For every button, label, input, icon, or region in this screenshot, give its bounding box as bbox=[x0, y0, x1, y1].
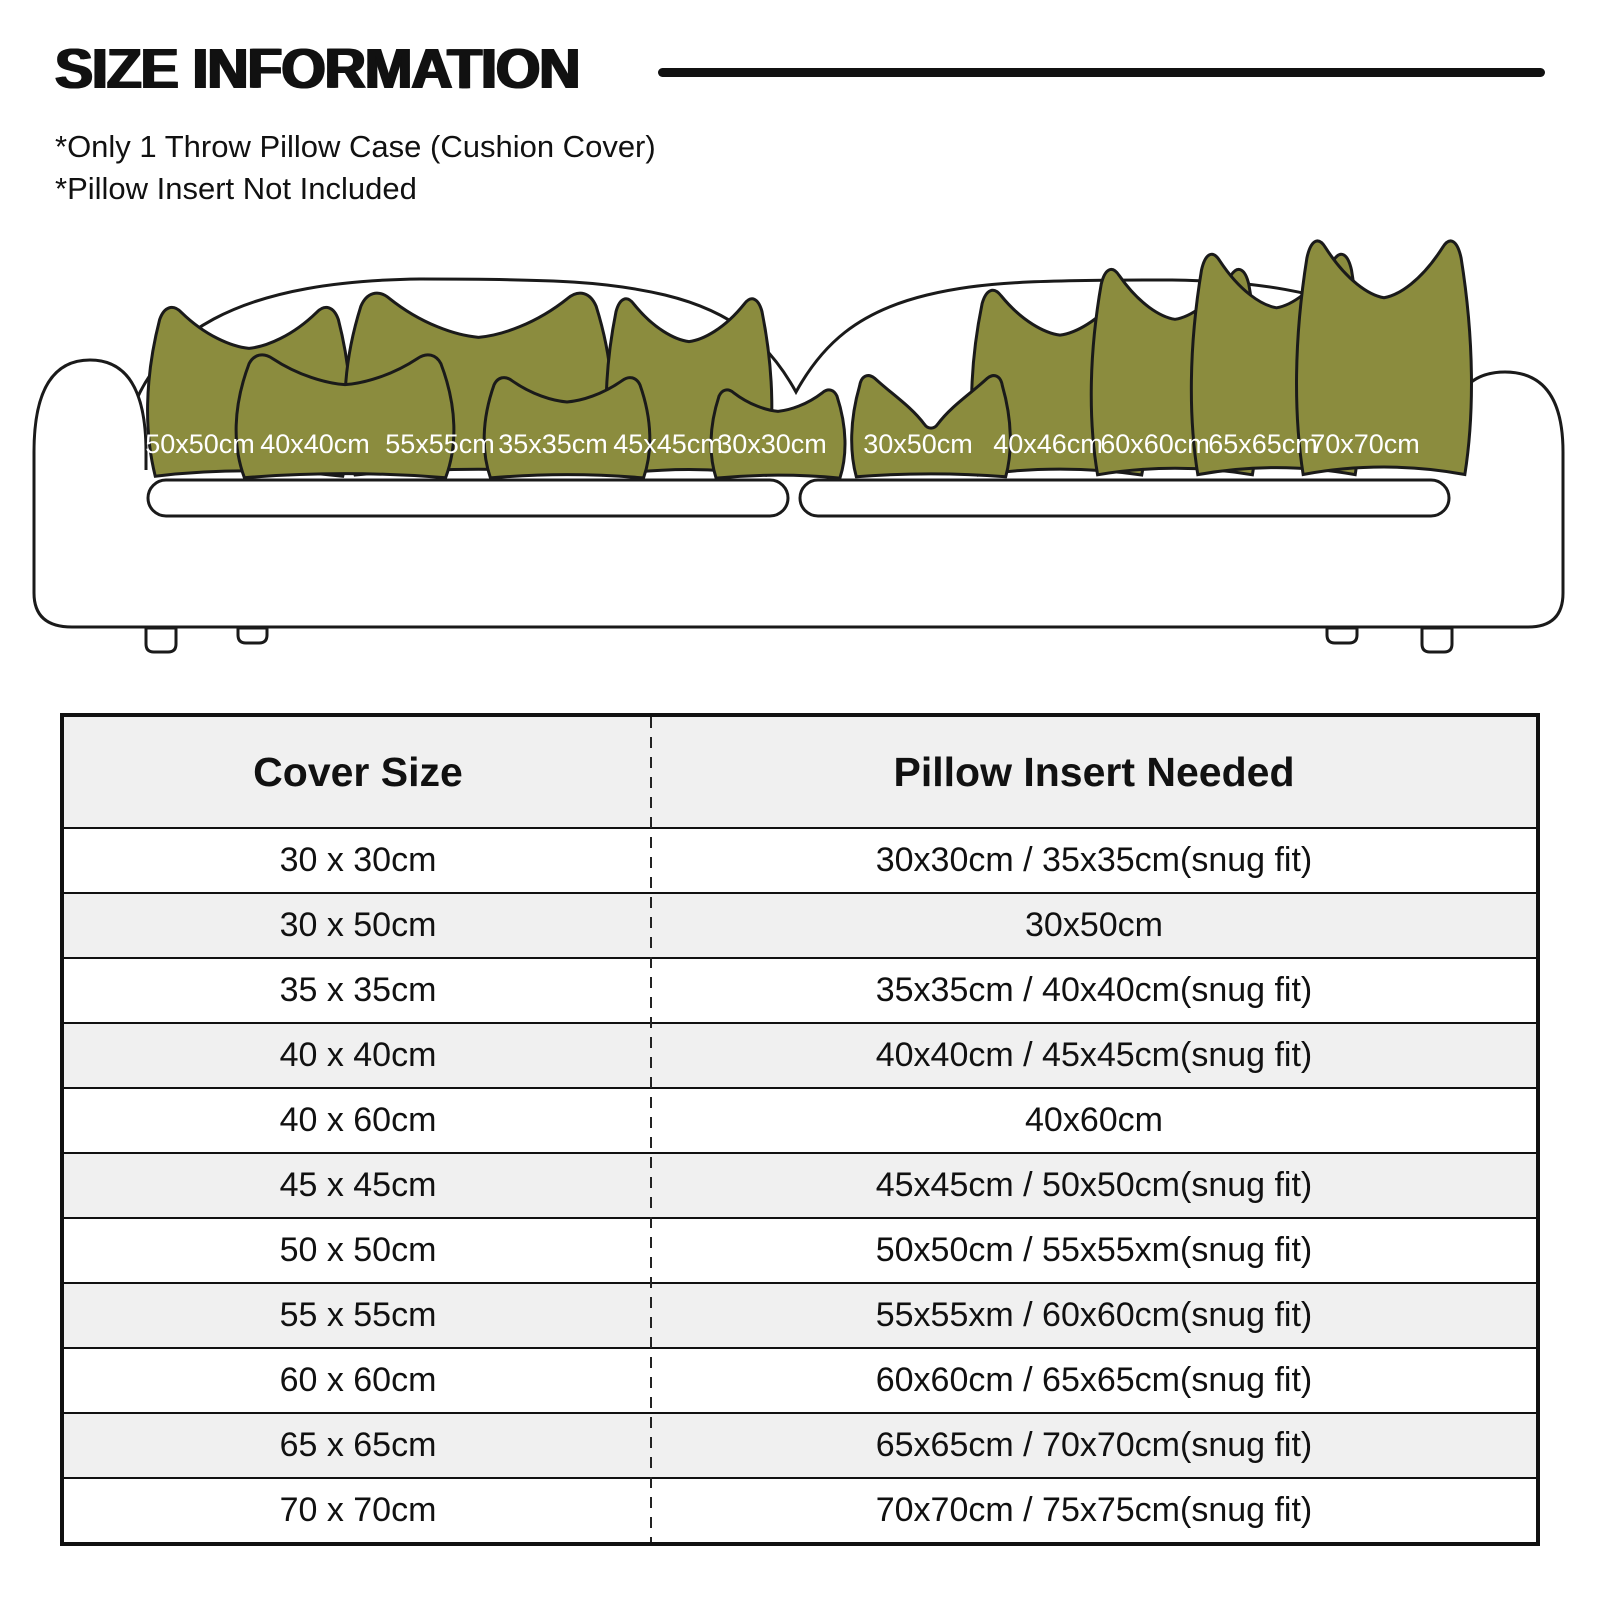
sofa-illustration: 50x50cm 40x40cm 55x55cm 35x35cm 45x45cm … bbox=[0, 0, 1600, 690]
sofa-leg bbox=[1327, 628, 1357, 643]
table-row: 45 x 45cm 45x45cm / 50x50cm(snug fit) bbox=[64, 1152, 1536, 1217]
table-header-pillow-insert: Pillow Insert Needed bbox=[652, 749, 1536, 796]
table-row: 30 x 50cm 30x50cm bbox=[64, 892, 1536, 957]
cover-size-cell: 30 x 30cm bbox=[64, 841, 652, 880]
table-row: 35 x 35cm 35x35cm / 40x40cm(snug fit) bbox=[64, 957, 1536, 1022]
column-divider bbox=[650, 717, 652, 1542]
insert-needed-cell: 40x60cm bbox=[652, 1101, 1536, 1140]
cover-size-cell: 60 x 60cm bbox=[64, 1361, 652, 1400]
pillow-label: 35x35cm bbox=[498, 429, 608, 459]
pillow-label: 50x50cm bbox=[145, 429, 255, 459]
table-row: 70 x 70cm 70x70cm / 75x75cm(snug fit) bbox=[64, 1477, 1536, 1542]
insert-needed-cell: 35x35cm / 40x40cm(snug fit) bbox=[652, 971, 1536, 1010]
table-row: 65 x 65cm 65x65cm / 70x70cm(snug fit) bbox=[64, 1412, 1536, 1477]
table-row: 50 x 50cm 50x50cm / 55x55xm(snug fit) bbox=[64, 1217, 1536, 1282]
size-table: Cover Size Pillow Insert Needed 30 x 30c… bbox=[60, 713, 1540, 1546]
insert-needed-cell: 30x50cm bbox=[652, 906, 1536, 945]
table-row: 60 x 60cm 60x60cm / 65x65cm(snug fit) bbox=[64, 1347, 1536, 1412]
pillow-label: 65x65cm bbox=[1208, 429, 1318, 459]
cover-size-cell: 55 x 55cm bbox=[64, 1296, 652, 1335]
pillow-label: 30x30cm bbox=[717, 429, 827, 459]
table-row: 40 x 40cm 40x40cm / 45x45cm(snug fit) bbox=[64, 1022, 1536, 1087]
table-row: 30 x 30cm 30x30cm / 35x35cm(snug fit) bbox=[64, 829, 1536, 892]
sofa-leg bbox=[1422, 628, 1452, 652]
sofa-leg bbox=[238, 628, 267, 643]
sofa-leg bbox=[146, 628, 176, 652]
cover-size-cell: 50 x 50cm bbox=[64, 1231, 652, 1270]
table-body: 30 x 30cm 30x30cm / 35x35cm(snug fit) 30… bbox=[64, 829, 1536, 1542]
pillow-label: 30x50cm bbox=[863, 429, 973, 459]
seat-cushion-right bbox=[800, 480, 1449, 516]
pillow-label: 60x60cm bbox=[1100, 429, 1210, 459]
pillow-label: 70x70cm bbox=[1310, 429, 1420, 459]
pillow-label: 40x46cm bbox=[993, 429, 1103, 459]
insert-needed-cell: 70x70cm / 75x75cm(snug fit) bbox=[652, 1491, 1536, 1530]
insert-needed-cell: 65x65cm / 70x70cm(snug fit) bbox=[652, 1426, 1536, 1465]
table-header-row: Cover Size Pillow Insert Needed bbox=[64, 717, 1536, 829]
seat-cushion-left bbox=[148, 480, 788, 516]
cover-size-cell: 70 x 70cm bbox=[64, 1491, 652, 1530]
cover-size-cell: 40 x 60cm bbox=[64, 1101, 652, 1140]
cover-size-cell: 35 x 35cm bbox=[64, 971, 652, 1010]
insert-needed-cell: 30x30cm / 35x35cm(snug fit) bbox=[652, 841, 1536, 880]
insert-needed-cell: 45x45cm / 50x50cm(snug fit) bbox=[652, 1166, 1536, 1205]
table-header-cover-size: Cover Size bbox=[64, 749, 652, 796]
cover-size-cell: 30 x 50cm bbox=[64, 906, 652, 945]
insert-needed-cell: 40x40cm / 45x45cm(snug fit) bbox=[652, 1036, 1536, 1075]
cover-size-cell: 65 x 65cm bbox=[64, 1426, 652, 1465]
cover-size-cell: 40 x 40cm bbox=[64, 1036, 652, 1075]
size-information-page: { "header": { "title": "SIZE INFORMATION… bbox=[0, 0, 1600, 1600]
insert-needed-cell: 50x50cm / 55x55xm(snug fit) bbox=[652, 1231, 1536, 1270]
table-row: 40 x 60cm 40x60cm bbox=[64, 1087, 1536, 1152]
pillow-label: 40x40cm bbox=[260, 429, 370, 459]
insert-needed-cell: 55x55xm / 60x60cm(snug fit) bbox=[652, 1296, 1536, 1335]
pillow-label: 55x55cm bbox=[385, 429, 495, 459]
insert-needed-cell: 60x60cm / 65x65cm(snug fit) bbox=[652, 1361, 1536, 1400]
cover-size-cell: 45 x 45cm bbox=[64, 1166, 652, 1205]
pillow-label: 45x45cm bbox=[613, 429, 723, 459]
table-row: 55 x 55cm 55x55xm / 60x60cm(snug fit) bbox=[64, 1282, 1536, 1347]
